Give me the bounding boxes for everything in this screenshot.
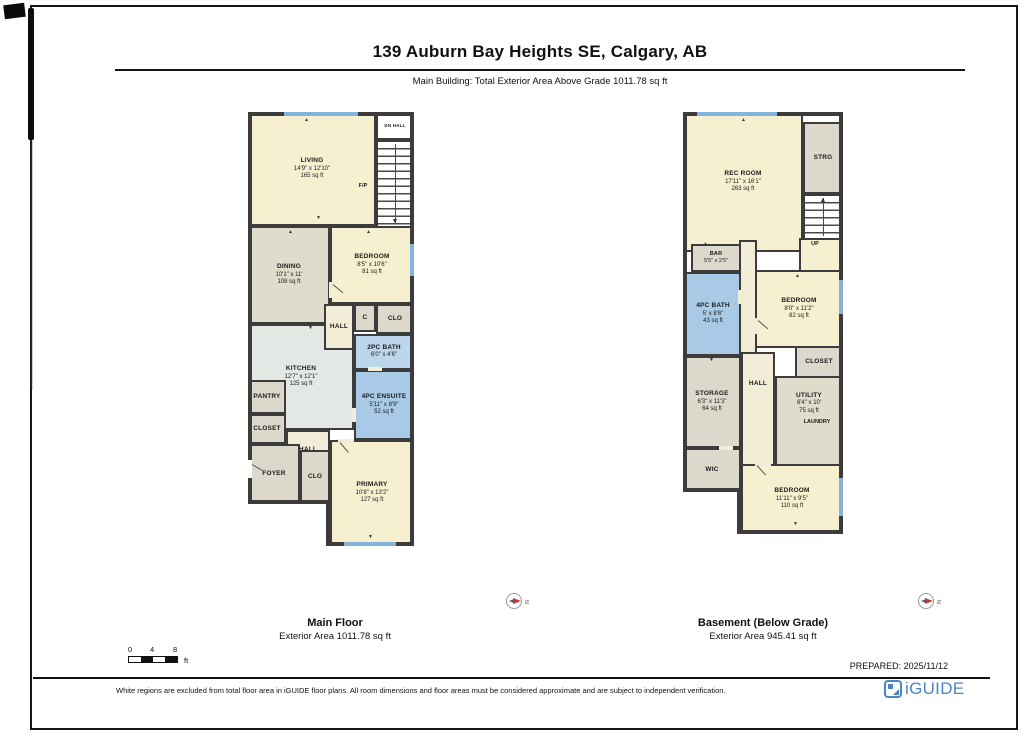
basement-caption: Basement (Below Grade) Exterior Area 945… (673, 617, 853, 643)
room-bedroom-upper: BEDROOM 8'0" x 11'2" 82 sq ft (755, 270, 843, 348)
wall (683, 488, 741, 492)
dimension-arrow: ▲ (304, 118, 309, 123)
room-bar: BAR 5'5" x 2'5" (691, 244, 741, 272)
room-hall-upper: HALL (324, 304, 354, 350)
window (344, 542, 396, 546)
wall (839, 112, 843, 534)
window (410, 244, 414, 276)
stair-arrow-icon: ▼ (392, 218, 399, 225)
scan-artifact (3, 3, 26, 19)
compass-icon: N (918, 592, 944, 612)
floor-plan-page: 139 Auburn Bay Heights SE, Calgary, AB M… (0, 0, 1024, 736)
main-floor-plan: LIVING 14'9" x 12'10" 165 sq ft DN HALL … (248, 112, 414, 550)
room-rec-room: REC ROOM 17'11" x 16'1" 263 sq ft (683, 112, 803, 252)
stair-arrow-icon: ▲ (820, 197, 827, 204)
scale-tick: 0 (128, 645, 132, 654)
window (697, 112, 777, 116)
room-storage: STORAGE 6'3" x 11'3" 64 sq ft (683, 356, 741, 448)
scale-tick: 8 (173, 645, 177, 654)
door-opening (368, 367, 382, 371)
room-living: LIVING 14'9" x 12'10" 165 sq ft (248, 112, 376, 226)
dimension-arrow: ▲ (741, 118, 746, 123)
room-wic: WIC (683, 448, 741, 492)
room-closet-basement: CLOSET (795, 346, 843, 378)
window (839, 478, 843, 516)
window (284, 112, 358, 116)
main-floor-title: Main Floor (245, 617, 425, 631)
room-pantry: PANTRY (248, 380, 286, 414)
basement-area: Exterior Area 945.41 sq ft (673, 631, 853, 643)
wall (248, 500, 330, 504)
dimension-arrow: ▲ (795, 274, 800, 279)
front-door-opening (248, 460, 252, 478)
room-bedroom-lower: BEDROOM 11'11" x 9'5" 110 sq ft (741, 464, 843, 534)
scale-bar: 0 4 8 ft (128, 645, 178, 663)
door-opening (719, 446, 733, 450)
iguide-logo: iGUIDE (884, 679, 964, 699)
laundry-label: LAUNDRY (791, 420, 843, 426)
iguide-logo-icon (884, 680, 902, 698)
room-clo-upper: CLO (376, 304, 414, 334)
room-4pc-bath: 4PC BATH 5' x 8'6" 43 sq ft (685, 272, 741, 356)
wall (737, 488, 741, 534)
scale-unit: ft (184, 656, 188, 665)
dimension-arrow: ▼ (709, 358, 714, 363)
wall (410, 112, 414, 546)
dimension-arrow: ▲ (288, 230, 293, 235)
compass-needle-icon (925, 598, 933, 604)
stair-rail (395, 144, 396, 224)
stairs-down: ▼ (376, 140, 414, 228)
main-floor-caption: Main Floor Exterior Area 1011.78 sq ft (245, 617, 425, 643)
footer-divider (33, 677, 990, 679)
room-clo-lower: CLO (300, 450, 330, 504)
room-strg: STRG (803, 122, 843, 194)
basement-plan: REC ROOM 17'11" x 16'1" 263 sq ft STRG ▲… (683, 112, 843, 538)
room-dining: DINING 10'1" x 11' 108 sq ft (248, 226, 330, 324)
fireplace-label: F/P (352, 184, 374, 190)
wall (737, 530, 843, 534)
page-subtitle: Main Building: Total Exterior Area Above… (115, 76, 965, 87)
disclaimer-text: White regions are excluded from total fl… (116, 686, 806, 695)
scan-artifact (28, 8, 34, 140)
main-floor-area: Exterior Area 1011.78 sq ft (245, 631, 425, 643)
door-opening (352, 408, 356, 422)
scale-tick: 4 (150, 645, 154, 654)
prepared-date: PREPARED: 2025/11/12 (850, 661, 948, 671)
page-border (30, 5, 1018, 730)
room-ensuite: 4PC ENSUITE 5'11" x 8'9" 52 sq ft (354, 370, 414, 440)
wall (248, 112, 252, 504)
room-foyer: FOYER (248, 444, 300, 504)
basement-title: Basement (Below Grade) (673, 617, 853, 631)
wall (683, 112, 687, 492)
up-label: UP (805, 242, 825, 248)
window (839, 280, 843, 314)
room-dn-hall: DN HALL (376, 112, 414, 140)
door-opening (738, 290, 742, 304)
compass-north-label: N (935, 600, 941, 604)
dimension-arrow: ▲ (366, 230, 371, 235)
room-primary: PRIMARY 10'8" x 13'2" 127 sq ft (330, 440, 414, 546)
room-hall-basement: HALL (741, 352, 775, 466)
room-closet-c: C (354, 304, 376, 332)
compass-needle-icon (513, 598, 521, 604)
room-closet-main: CLOSET (248, 414, 286, 444)
dimension-arrow: ▼ (308, 326, 313, 331)
stairs-up: ▲ (803, 194, 843, 240)
dimension-arrow: ▼ (793, 522, 798, 527)
dimension-arrow: ▲ (703, 242, 708, 247)
compass-north-label: N (523, 600, 529, 604)
iguide-logo-text: iGUIDE (905, 679, 964, 699)
scan-artifact (30, 140, 33, 390)
title-divider (115, 69, 965, 71)
page-title: 139 Auburn Bay Heights SE, Calgary, AB (115, 42, 965, 62)
compass-icon: N (506, 592, 532, 612)
dimension-arrow: ▼ (316, 216, 321, 221)
room-2pc-bath: 2PC BATH 6'0" x 4'6" (354, 334, 414, 370)
wall (326, 500, 330, 546)
dimension-arrow: ▼ (368, 535, 373, 540)
